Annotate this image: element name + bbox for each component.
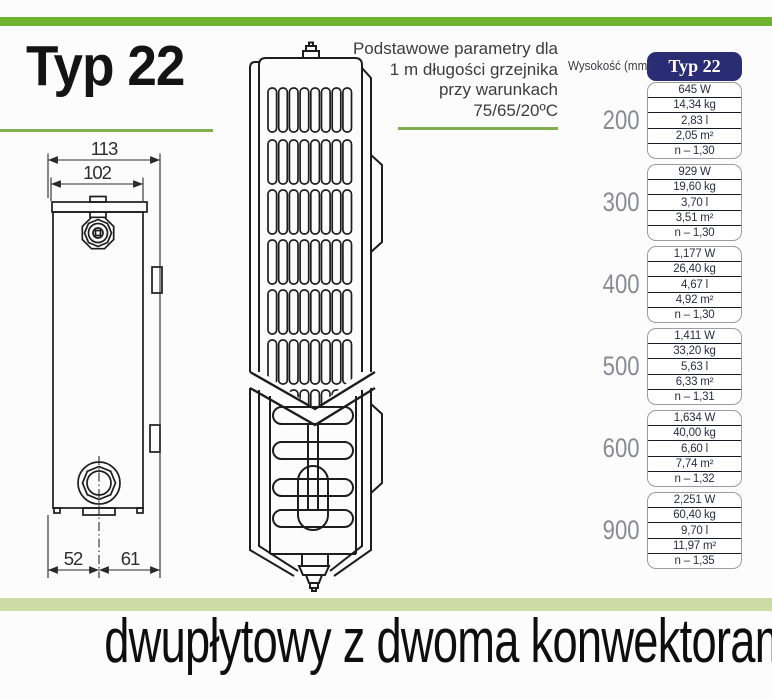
- table-row-group-900: 900 2,251 W 60,40 kg 9,70 l 11,97 m² n –…: [562, 492, 742, 569]
- weight-value: 60,40 kg: [648, 507, 741, 522]
- grille-slots: [268, 88, 352, 434]
- power-value: 645 W: [648, 83, 741, 97]
- height-label: 200: [577, 82, 647, 159]
- value-box: 2,251 W 60,40 kg 9,70 l 11,97 m² n – 1,3…: [647, 492, 742, 569]
- top-accent-bar: [0, 17, 772, 26]
- weight-value: 33,20 kg: [648, 343, 741, 358]
- parameters-underline: [398, 127, 558, 130]
- value-box: 1,634 W 40,00 kg 6,60 l 7,74 m² n – 1,32: [647, 410, 742, 487]
- exponent-value: n – 1,30: [648, 225, 741, 240]
- area-value: 2,05 m²: [648, 128, 741, 143]
- capacity-value: 6,60 l: [648, 440, 741, 455]
- value-box: 1,177 W 26,40 kg 4,67 l 4,92 m² n – 1,30: [647, 246, 742, 323]
- power-value: 2,251 W: [648, 493, 741, 507]
- height-label: 900: [577, 492, 647, 569]
- capacity-value: 5,63 l: [648, 358, 741, 373]
- height-label: 600: [577, 410, 647, 487]
- table-row-group-600: 600 1,634 W 40,00 kg 6,60 l 7,74 m² n – …: [562, 410, 742, 487]
- area-value: 7,74 m²: [648, 456, 741, 471]
- capacity-value: 9,70 l: [648, 522, 741, 537]
- page-title: Typ 22: [26, 33, 184, 99]
- weight-value: 26,40 kg: [648, 261, 741, 276]
- weight-value: 40,00 kg: [648, 425, 741, 440]
- height-label: 300: [577, 164, 647, 241]
- power-value: 1,634 W: [648, 411, 741, 425]
- table-row-group-200: 200 645 W 14,34 kg 2,83 l 2,05 m² n – 1,…: [562, 82, 742, 159]
- weight-value: 19,60 kg: [648, 179, 741, 194]
- power-value: 929 W: [648, 165, 741, 179]
- capacity-value: 4,67 l: [648, 276, 741, 291]
- area-value: 3,51 m²: [648, 210, 741, 225]
- exponent-value: n – 1,35: [648, 553, 741, 568]
- exponent-value: n – 1,31: [648, 389, 741, 404]
- dim-bottom-left-label: 52: [64, 548, 83, 569]
- spec-table: Wysokość (mm) Typ 22 200 645 W 14,34 kg …: [562, 50, 742, 574]
- exponent-value: n – 1,32: [648, 471, 741, 486]
- height-label: 400: [577, 246, 647, 323]
- table-row-group-500: 500 1,411 W 33,20 kg 5,63 l 6,33 m² n – …: [562, 328, 742, 405]
- table-row-group-400: 400 1,177 W 26,40 kg 4,67 l 4,92 m² n – …: [562, 246, 742, 323]
- title-underline: [0, 129, 213, 132]
- capacity-value: 2,83 l: [648, 112, 741, 127]
- power-value: 1,411 W: [648, 329, 741, 343]
- front-view-drawing: [240, 38, 400, 618]
- dim-outer-depth-label: 113: [91, 140, 118, 159]
- weight-value: 14,34 kg: [648, 97, 741, 112]
- height-label: 500: [577, 328, 647, 405]
- dim-inner-depth-label: 102: [83, 162, 112, 183]
- dim-bottom-right-label: 61: [121, 548, 140, 569]
- height-column-header: Wysokość (mm): [568, 59, 647, 73]
- table-header-row: Wysokość (mm) Typ 22: [562, 50, 742, 82]
- power-value: 1,177 W: [648, 247, 741, 261]
- value-box: 929 W 19,60 kg 3,70 l 3,51 m² n – 1,30: [647, 164, 742, 241]
- side-view-drawing: 113 102 52 61: [20, 140, 200, 600]
- exponent-value: n – 1,30: [648, 307, 741, 322]
- type-column-header: Typ 22: [647, 52, 742, 81]
- capacity-value: 3,70 l: [648, 194, 741, 209]
- area-value: 4,92 m²: [648, 292, 741, 307]
- value-box: 1,411 W 33,20 kg 5,63 l 6,33 m² n – 1,31: [647, 328, 742, 405]
- area-value: 11,97 m²: [648, 538, 741, 553]
- area-value: 6,33 m²: [648, 374, 741, 389]
- radiator-spec-sheet: Typ 22 Podstawowe parametry dla 1 m dług…: [0, 0, 772, 699]
- table-row-group-300: 300 929 W 19,60 kg 3,70 l 3,51 m² n – 1,…: [562, 164, 742, 241]
- footer-caption: dwupłytowy z dwoma konwektorami: [104, 606, 668, 677]
- value-box: 645 W 14,34 kg 2,83 l 2,05 m² n – 1,30: [647, 82, 742, 159]
- exponent-value: n – 1,30: [648, 143, 741, 158]
